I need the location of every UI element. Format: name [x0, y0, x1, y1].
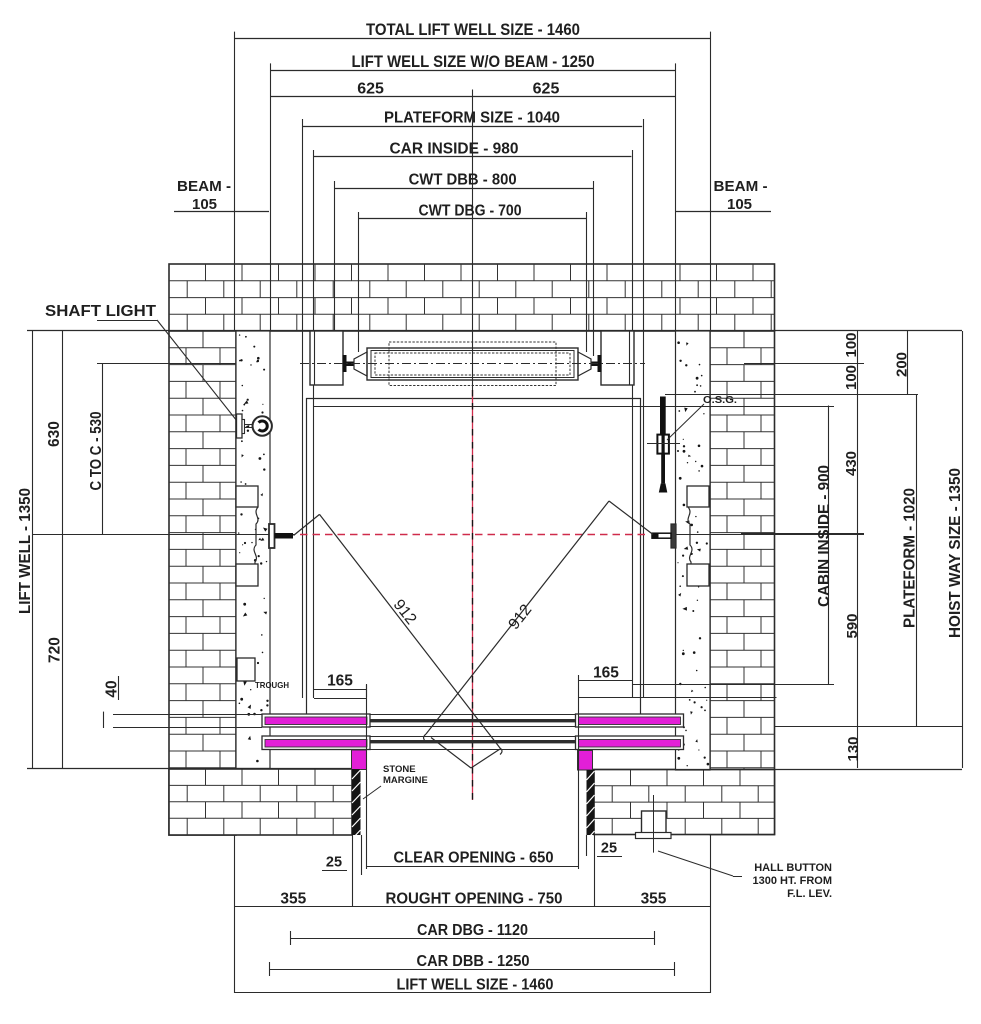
svg-text:PLATEFORM SIZE - 1040: PLATEFORM SIZE - 1040 — [384, 110, 560, 127]
svg-text:BEAM -: BEAM - — [714, 178, 768, 195]
svg-text:165: 165 — [593, 665, 619, 682]
svg-text:O.S.G.: O.S.G. — [703, 394, 737, 406]
svg-text:590: 590 — [844, 613, 861, 638]
svg-text:STONE: STONE — [383, 764, 416, 775]
svg-text:CAR DBB - 1250: CAR DBB - 1250 — [417, 953, 530, 970]
svg-text:CLEAR OPENING - 650: CLEAR OPENING - 650 — [394, 850, 554, 867]
svg-text:CWT DBB - 800: CWT DBB - 800 — [409, 172, 517, 189]
svg-text:130: 130 — [845, 736, 862, 761]
svg-text:1300 HT. FROM: 1300 HT. FROM — [753, 875, 832, 887]
svg-text:430: 430 — [843, 451, 860, 476]
svg-text:355: 355 — [280, 890, 306, 907]
svg-text:HALL BUTTON: HALL BUTTON — [754, 862, 832, 874]
svg-text:LIFT WELL SIZE W/O BEAM - 1250: LIFT WELL SIZE W/O BEAM - 1250 — [352, 52, 595, 71]
svg-text:625: 625 — [533, 81, 560, 98]
svg-text:100: 100 — [843, 332, 860, 357]
svg-text:C TO C - 530: C TO C - 530 — [88, 412, 105, 491]
svg-text:720: 720 — [47, 637, 64, 663]
svg-text:625: 625 — [357, 81, 384, 98]
svg-text:HOIST WAY SIZE - 1350: HOIST WAY SIZE - 1350 — [947, 468, 964, 638]
svg-text:CABIN INSIDE - 900: CABIN INSIDE - 900 — [816, 465, 833, 607]
svg-text:CAR DBG - 1120: CAR DBG - 1120 — [417, 922, 528, 939]
svg-text:LIFT WELL - 1350: LIFT WELL - 1350 — [17, 488, 34, 614]
svg-text:630: 630 — [46, 421, 63, 447]
svg-text:ROUGHT OPENING - 750: ROUGHT OPENING - 750 — [386, 890, 563, 907]
svg-text:25: 25 — [601, 841, 617, 857]
svg-text:40: 40 — [104, 680, 121, 697]
svg-text:SHAFT LIGHT: SHAFT LIGHT — [45, 303, 157, 320]
svg-text:105: 105 — [727, 196, 752, 213]
svg-text:TOTAL LIFT WELL SIZE - 1460: TOTAL LIFT WELL SIZE - 1460 — [366, 20, 580, 39]
svg-text:PLATEFORM - 1020: PLATEFORM - 1020 — [902, 488, 919, 628]
svg-text:200: 200 — [894, 352, 911, 377]
svg-text:105: 105 — [192, 196, 217, 213]
svg-text:BEAM -: BEAM - — [177, 178, 231, 195]
svg-text:MARGINE: MARGINE — [383, 775, 428, 786]
svg-text:TROUGH: TROUGH — [255, 680, 289, 690]
svg-text:CWT DBG - 700: CWT DBG - 700 — [419, 203, 522, 220]
svg-text:100: 100 — [843, 365, 860, 390]
svg-text:355: 355 — [641, 890, 667, 907]
svg-text:165: 165 — [327, 673, 353, 690]
svg-text:25: 25 — [326, 855, 342, 871]
svg-text:LIFT WELL SIZE - 1460: LIFT WELL SIZE - 1460 — [397, 976, 554, 993]
svg-text:CAR INSIDE - 980: CAR INSIDE - 980 — [390, 141, 519, 158]
svg-text:F.L. LEV.: F.L. LEV. — [787, 888, 832, 900]
